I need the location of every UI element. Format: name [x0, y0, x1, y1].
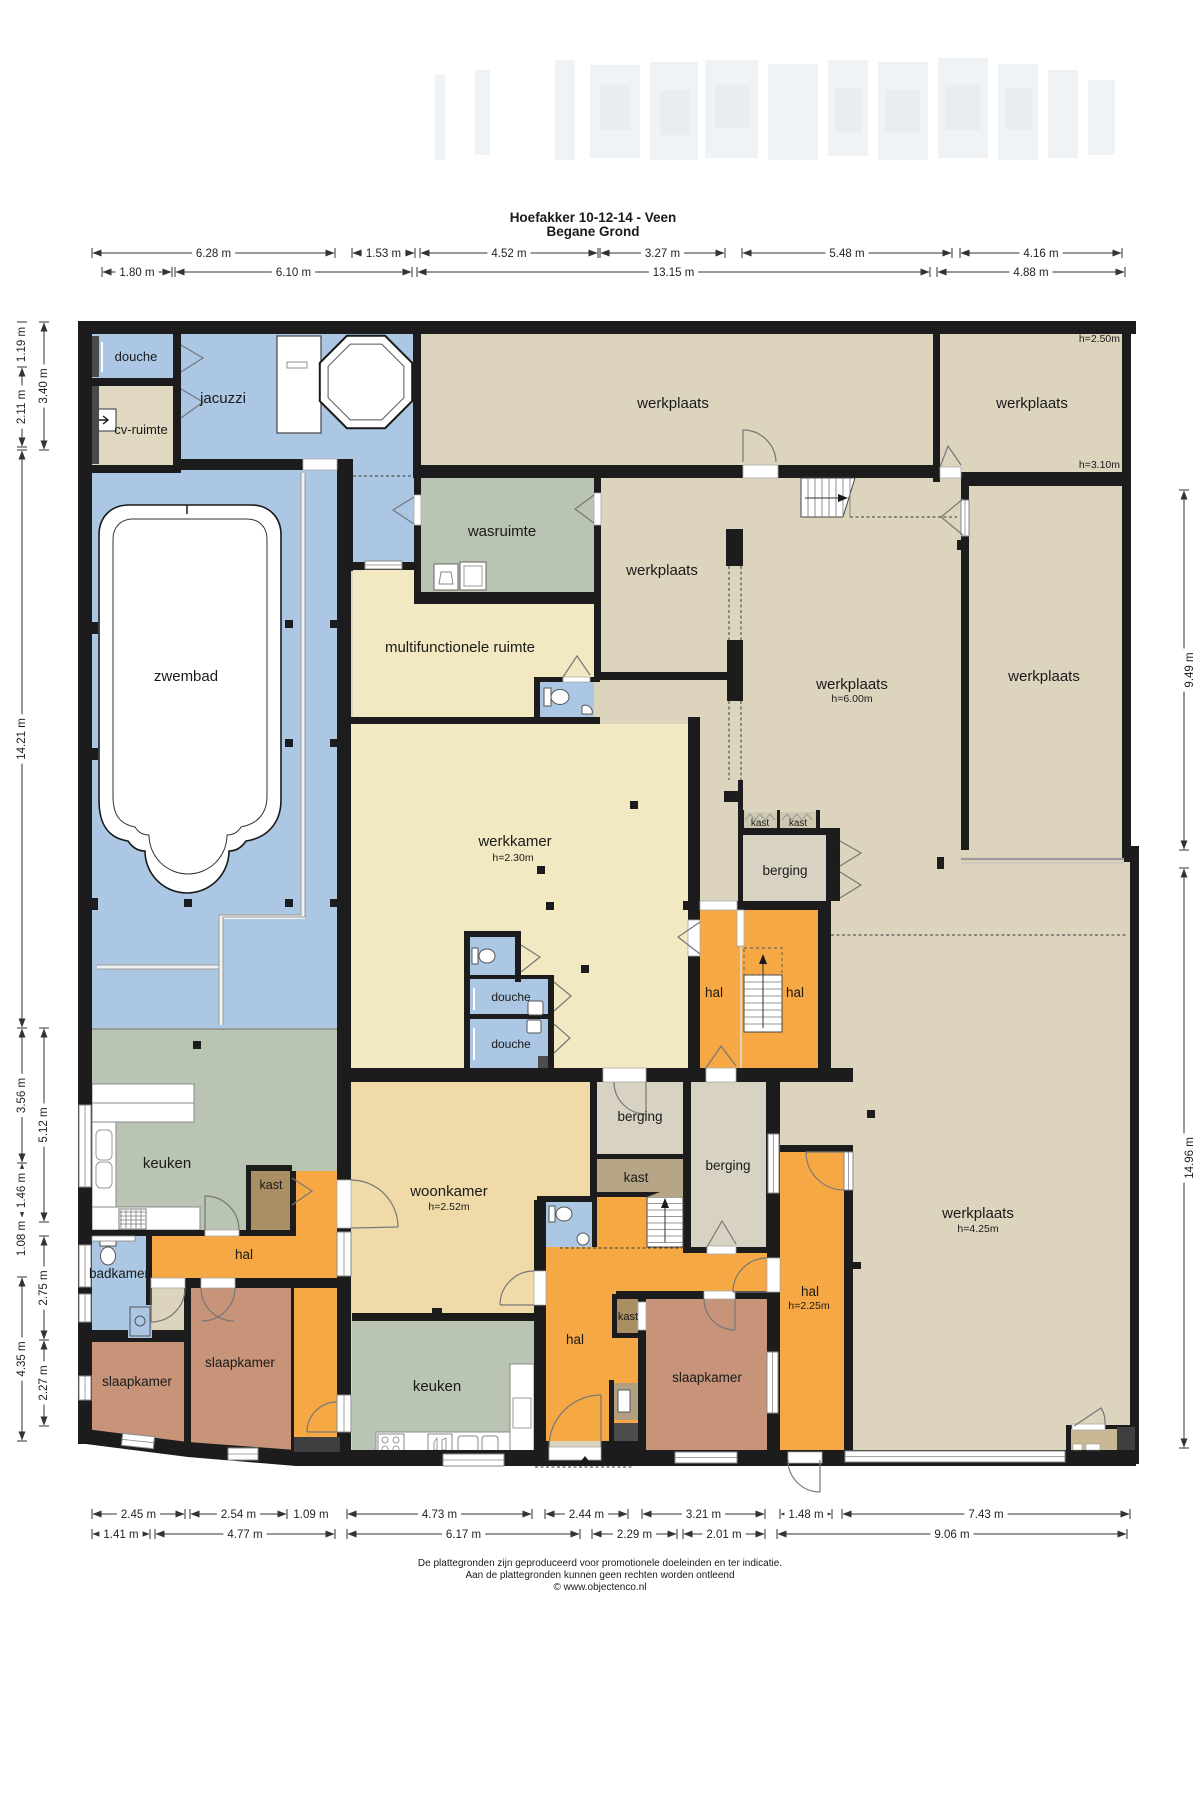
svg-text:werkplaats: werkplaats — [815, 676, 888, 693]
svg-text:hal: hal — [566, 1332, 584, 1347]
svg-text:hal: hal — [786, 985, 804, 1000]
svg-text:1.46 m: 1.46 m — [16, 1173, 28, 1208]
svg-text:berging: berging — [762, 863, 807, 878]
svg-text:De plattegronden zijn geproduc: De plattegronden zijn geproduceerd voor … — [418, 1558, 782, 1569]
svg-text:14.21 m: 14.21 m — [16, 718, 28, 760]
svg-text:2.45 m: 2.45 m — [121, 1509, 156, 1521]
svg-text:h=2.25m: h=2.25m — [788, 1300, 829, 1312]
svg-text:6.28 m: 6.28 m — [196, 248, 231, 260]
svg-text:6.17 m: 6.17 m — [446, 1529, 481, 1541]
svg-text:3.40 m: 3.40 m — [38, 368, 50, 403]
svg-text:cv-ruimte: cv-ruimte — [114, 422, 167, 437]
svg-text:hal: hal — [801, 1284, 819, 1299]
svg-text:werkplaats: werkplaats — [625, 562, 698, 579]
svg-text:multifunctionele ruimte: multifunctionele ruimte — [385, 639, 535, 656]
svg-text:3.27 m: 3.27 m — [645, 248, 680, 260]
svg-text:woonkamer: woonkamer — [409, 1183, 488, 1200]
svg-text:kast: kast — [260, 1178, 283, 1192]
svg-text:3.56 m: 3.56 m — [16, 1078, 28, 1113]
svg-text:werkplaats: werkplaats — [1007, 668, 1080, 685]
svg-text:h=4.25m: h=4.25m — [957, 1223, 998, 1235]
svg-text:h=3.10m: h=3.10m — [1079, 459, 1120, 471]
svg-text:h=2.52m: h=2.52m — [428, 1201, 469, 1213]
svg-text:5.48 m: 5.48 m — [829, 248, 864, 260]
svg-text:4.35 m: 4.35 m — [16, 1341, 28, 1376]
svg-text:keuken: keuken — [413, 1378, 461, 1395]
svg-text:slaapkamer: slaapkamer — [102, 1374, 172, 1389]
svg-text:4.77 m: 4.77 m — [227, 1529, 262, 1541]
svg-text:badkamer: badkamer — [89, 1266, 150, 1281]
svg-text:4.88 m: 4.88 m — [1013, 267, 1048, 279]
svg-text:douche: douche — [491, 990, 531, 1004]
svg-text:2.01 m: 2.01 m — [706, 1529, 741, 1541]
svg-text:5.12 m: 5.12 m — [38, 1107, 50, 1142]
svg-text:1.53 m: 1.53 m — [366, 248, 401, 260]
svg-text:jacuzzi: jacuzzi — [199, 390, 246, 407]
svg-text:4.16 m: 4.16 m — [1023, 248, 1058, 260]
svg-text:1.48 m: 1.48 m — [788, 1509, 823, 1521]
svg-text:1.80 m: 1.80 m — [119, 267, 154, 279]
svg-text:hal: hal — [705, 985, 723, 1000]
svg-text:hal: hal — [235, 1247, 253, 1262]
svg-text:2.54 m: 2.54 m — [221, 1509, 256, 1521]
svg-text:2.29 m: 2.29 m — [617, 1529, 652, 1541]
svg-text:werkplaats: werkplaats — [995, 395, 1068, 412]
svg-text:2.44 m: 2.44 m — [569, 1509, 604, 1521]
svg-text:kast: kast — [751, 818, 770, 829]
svg-text:kast: kast — [618, 1311, 638, 1323]
svg-text:3.21 m: 3.21 m — [686, 1509, 721, 1521]
svg-text:1.41 m: 1.41 m — [103, 1529, 138, 1541]
svg-text:Begane Grond: Begane Grond — [546, 224, 639, 239]
svg-text:4.73 m: 4.73 m — [422, 1509, 457, 1521]
svg-text:wasruimte: wasruimte — [467, 523, 536, 540]
svg-text:slaapkamer: slaapkamer — [672, 1370, 742, 1385]
svg-text:14.96 m: 14.96 m — [1184, 1137, 1196, 1179]
svg-text:keuken: keuken — [143, 1155, 191, 1172]
svg-text:2.11 m: 2.11 m — [16, 390, 28, 424]
svg-text:slaapkamer: slaapkamer — [205, 1355, 275, 1370]
svg-text:h=6.00m: h=6.00m — [831, 693, 872, 705]
svg-text:werkplaats: werkplaats — [636, 395, 709, 412]
svg-text:2.27 m: 2.27 m — [38, 1365, 50, 1400]
svg-text:kast: kast — [624, 1170, 649, 1185]
svg-text:berging: berging — [617, 1109, 662, 1124]
svg-text:9.06 m: 9.06 m — [934, 1529, 969, 1541]
svg-text:h=2.30m: h=2.30m — [492, 852, 533, 864]
svg-text:1.19 m: 1.19 m — [16, 327, 28, 362]
svg-text:1.08 m: 1.08 m — [16, 1221, 28, 1256]
svg-text:douche: douche — [491, 1037, 531, 1051]
svg-text:zwembad: zwembad — [154, 668, 218, 685]
svg-text:4.52 m: 4.52 m — [491, 248, 526, 260]
svg-text:1.09 m: 1.09 m — [293, 1509, 328, 1521]
svg-text:2.75 m: 2.75 m — [38, 1270, 50, 1305]
svg-text:werkplaats: werkplaats — [941, 1205, 1014, 1222]
svg-text:douche: douche — [115, 349, 158, 364]
svg-text:13.15 m: 13.15 m — [653, 267, 695, 279]
svg-text:6.10 m: 6.10 m — [276, 267, 311, 279]
svg-text:kast: kast — [789, 818, 808, 829]
svg-text:werkkamer: werkkamer — [477, 833, 551, 850]
svg-text:berging: berging — [705, 1158, 750, 1173]
svg-text:9.49 m: 9.49 m — [1184, 652, 1196, 687]
svg-text:Aan de plattegronden kunnen ge: Aan de plattegronden kunnen geen rechten… — [465, 1570, 734, 1581]
svg-text:7.43 m: 7.43 m — [968, 1509, 1003, 1521]
svg-text:© www.objectenco.nl: © www.objectenco.nl — [554, 1582, 647, 1593]
svg-text:Hoefakker 10-12-14 - Veen: Hoefakker 10-12-14 - Veen — [510, 210, 677, 225]
svg-text:h=2.50m: h=2.50m — [1079, 333, 1120, 345]
